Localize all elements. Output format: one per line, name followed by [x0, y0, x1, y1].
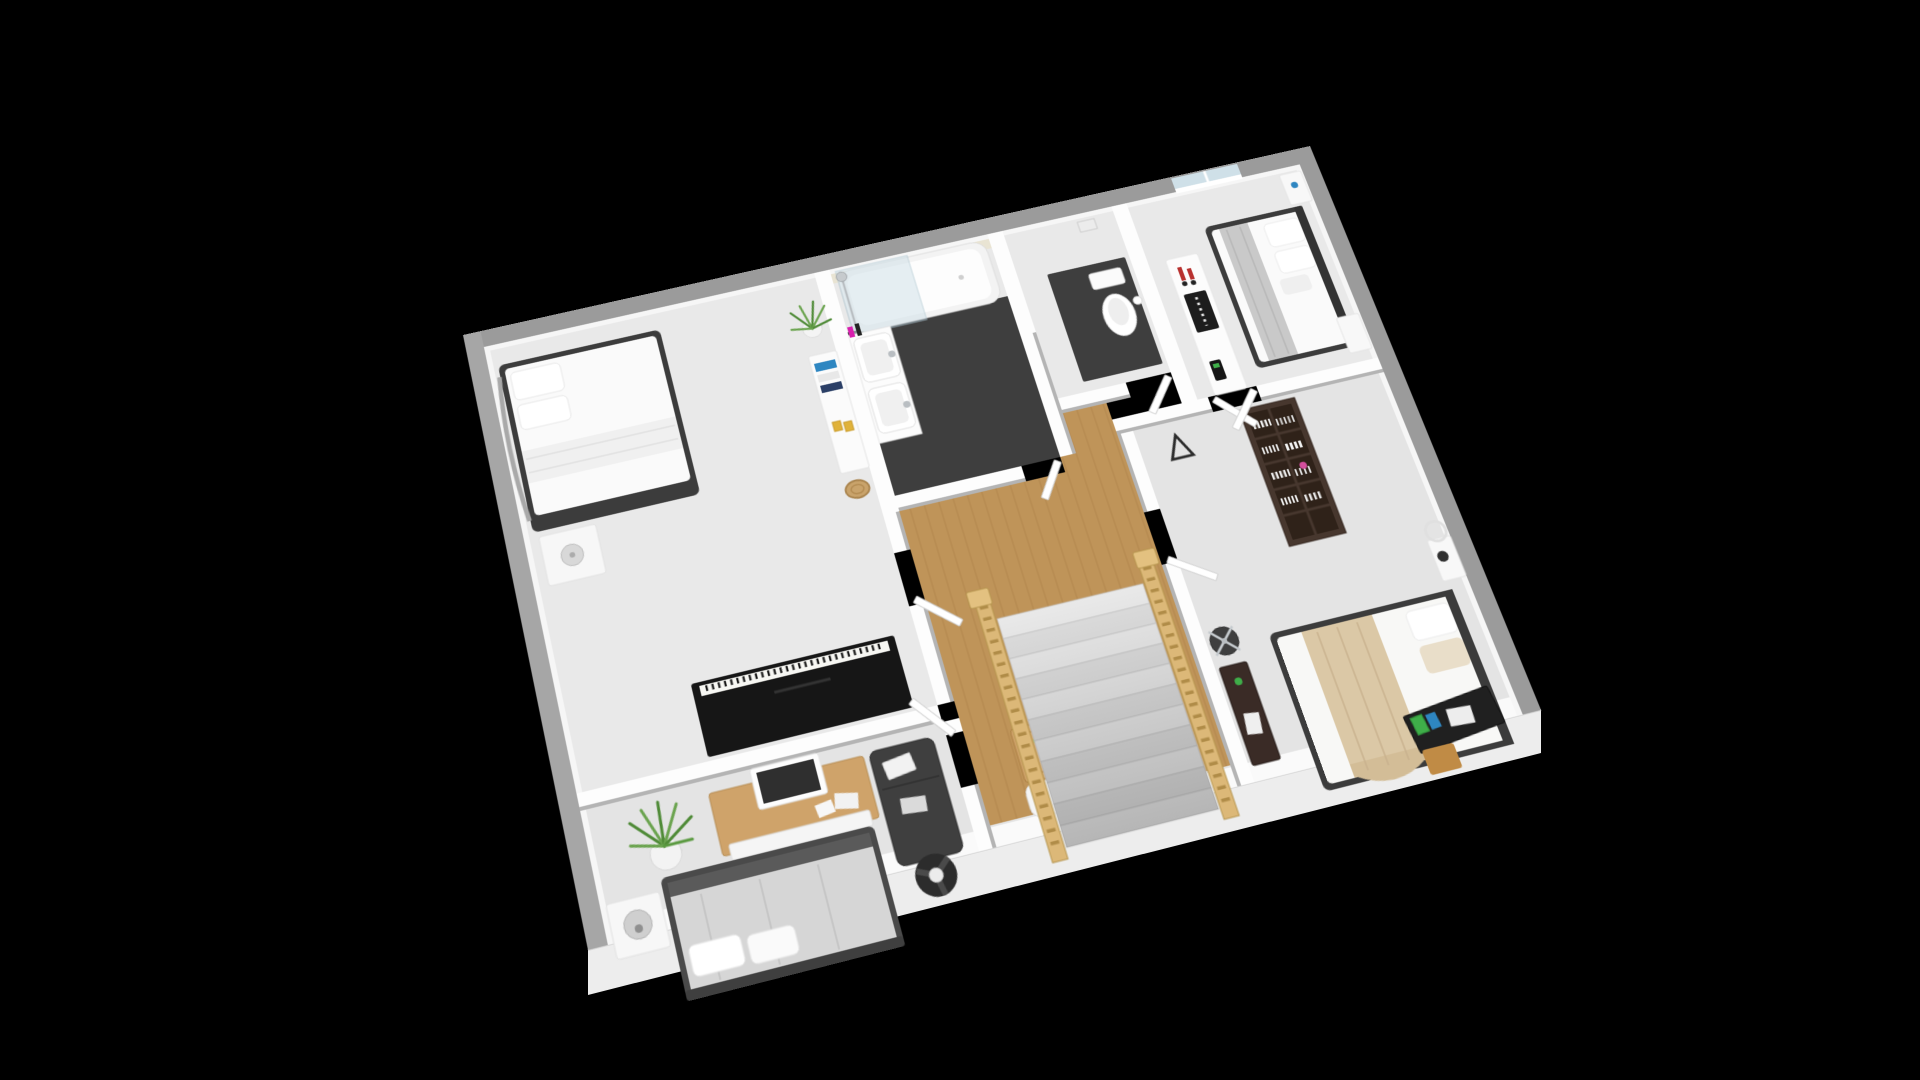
papers [834, 792, 859, 809]
render-canvas [0, 0, 1920, 1080]
